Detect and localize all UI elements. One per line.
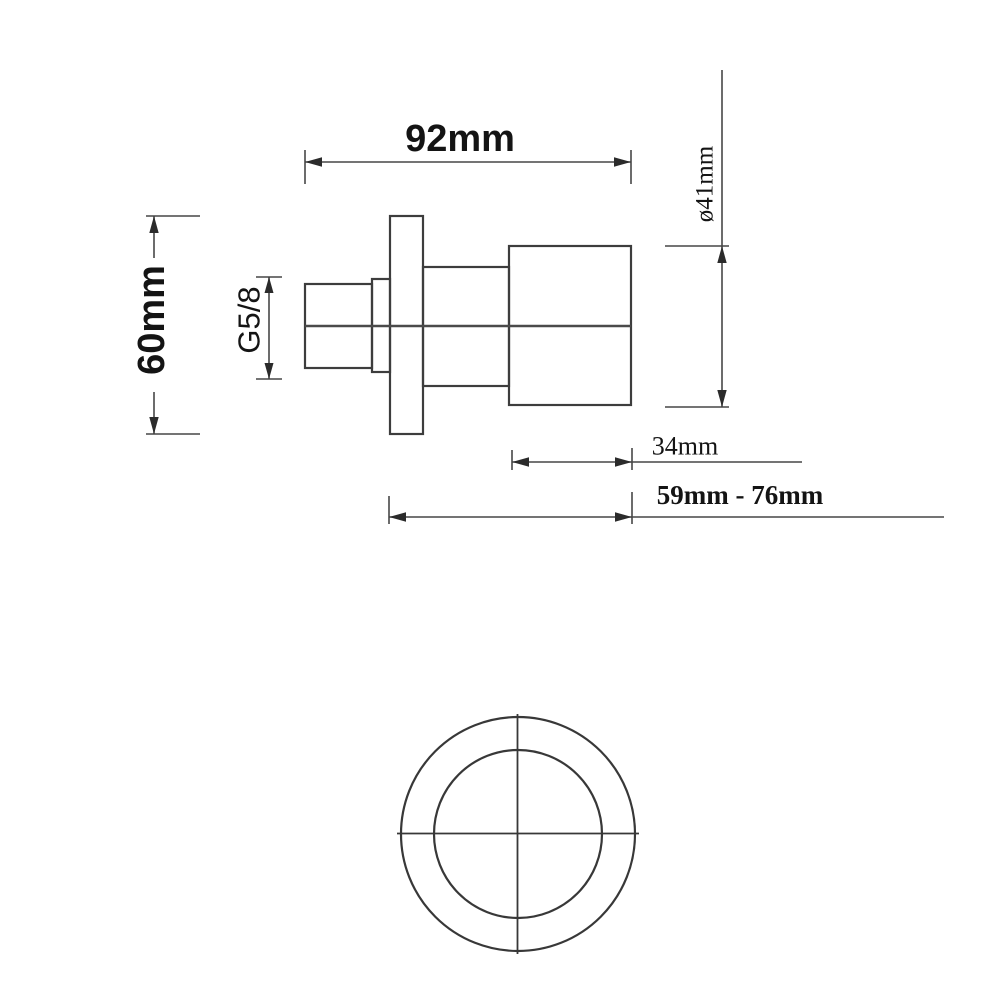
drawing-canvas: 92mm 60mm G5/8 ø41mm: [0, 0, 1000, 1000]
front-view: [397, 714, 639, 954]
down-arrow-icon: [717, 390, 726, 407]
technical-drawing: 92mm 60mm G5/8 ø41mm: [0, 0, 1000, 1000]
depth-range-label: 59mm - 76mm: [657, 480, 824, 510]
dimension-total-width: 92mm: [305, 118, 631, 184]
side-view: [305, 216, 631, 434]
dimension-handle-diameter: ø41mm: [665, 70, 729, 407]
down-arrow-icon: [149, 417, 158, 434]
handle-diameter-label: ø41mm: [692, 145, 719, 222]
up-arrow-icon: [717, 246, 726, 263]
down-arrow-icon: [265, 363, 274, 379]
left-arrow-icon: [305, 157, 322, 166]
right-arrow-icon: [615, 512, 632, 521]
handle-length-label: 34mm: [652, 432, 718, 461]
flange-height-label: 60mm: [131, 265, 173, 375]
thread-size-label: G5/8: [232, 286, 267, 353]
dimension-flange-height: 60mm: [131, 216, 200, 434]
dimension-thread-size: G5/8: [232, 277, 283, 379]
right-arrow-icon: [615, 457, 632, 466]
up-arrow-icon: [149, 216, 158, 233]
left-arrow-icon: [389, 512, 406, 521]
dimension-depth-range: 59mm - 76mm: [389, 480, 944, 524]
right-arrow-icon: [614, 157, 631, 166]
left-arrow-icon: [512, 457, 529, 466]
dimension-handle-length: 34mm: [512, 432, 802, 471]
total-width-label: 92mm: [405, 118, 515, 160]
